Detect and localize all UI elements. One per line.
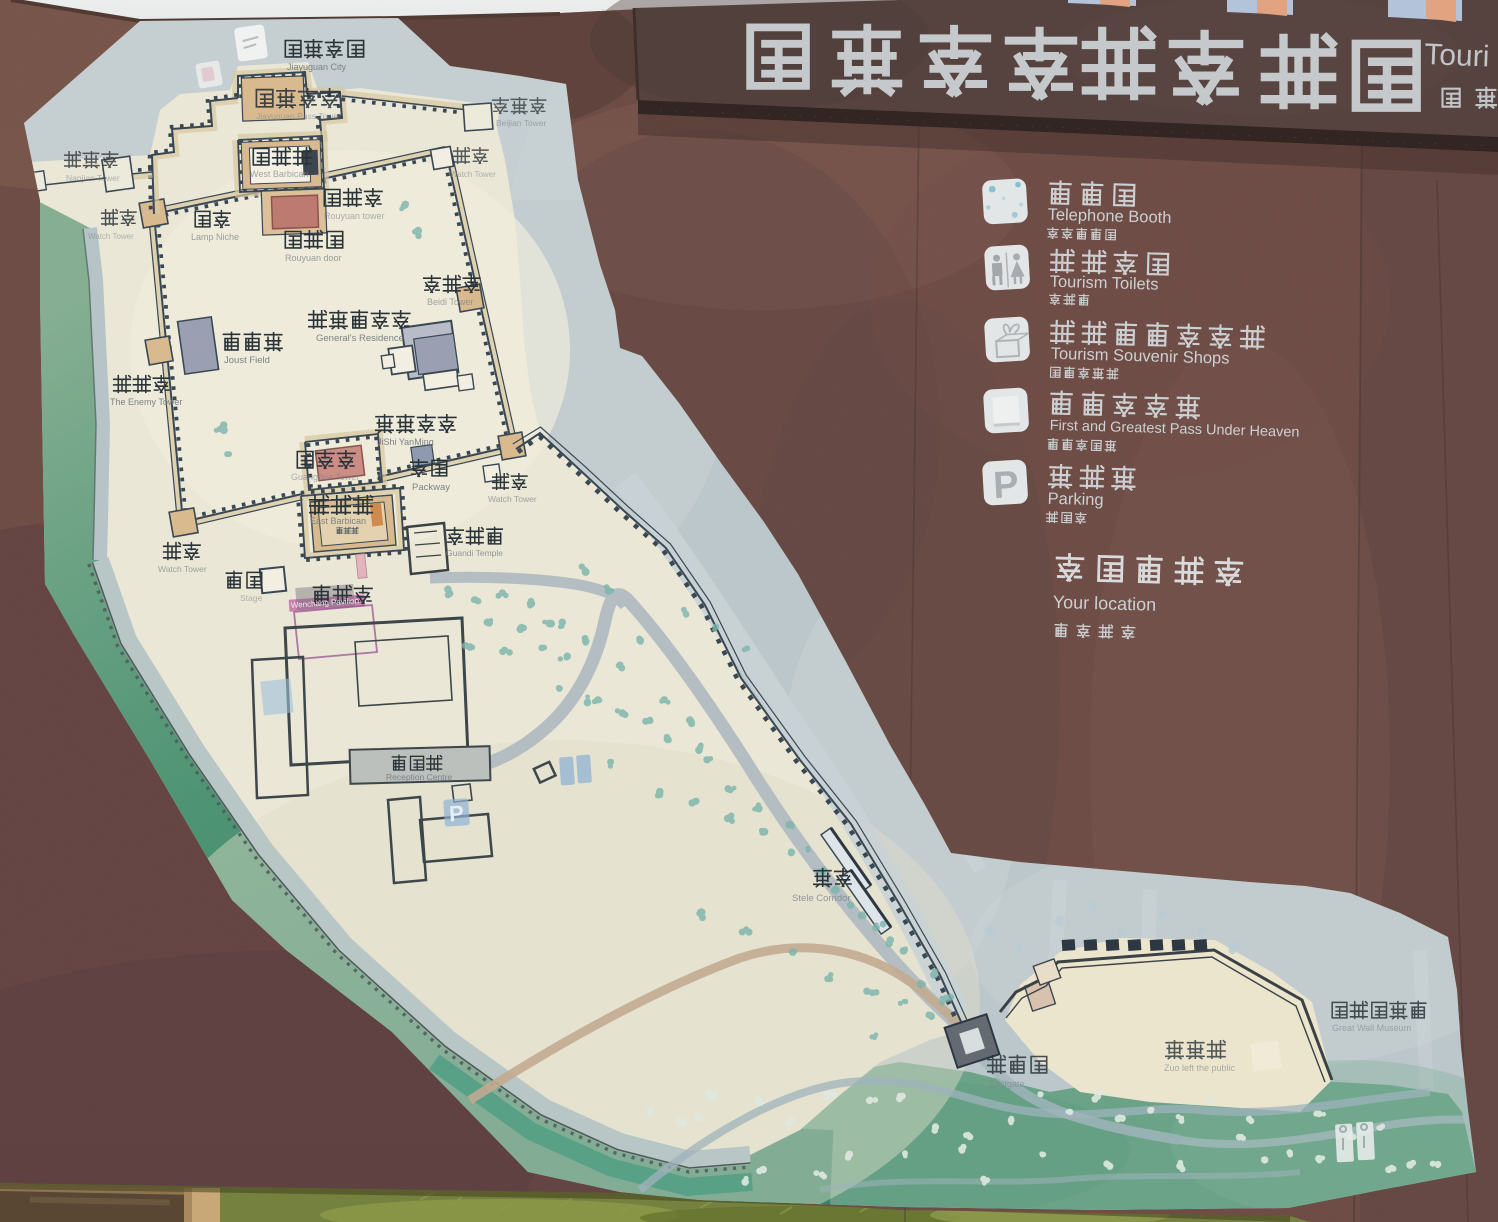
svg-text:P: P — [992, 464, 1020, 507]
svg-text:Reception Centre: Reception Centre — [386, 772, 452, 782]
svg-text:Packway: Packway — [412, 482, 450, 493]
svg-text:Watch Tower: Watch Tower — [488, 494, 537, 504]
svg-text:Beijian Tower: Beijian Tower — [496, 118, 547, 128]
svg-text:Your location: Your location — [1053, 592, 1157, 615]
svg-text:Rouyuan door: Rouyuan door — [285, 253, 342, 263]
svg-text:Stele Corridor: Stele Corridor — [792, 893, 851, 904]
svg-text:Guandi Temple: Guandi Temple — [446, 548, 503, 558]
svg-text:Jiayuguan Pass Tower: Jiayuguan Pass Tower — [256, 111, 341, 121]
svg-text:Stage: Stage — [240, 593, 262, 603]
svg-text:Jiayuguan City: Jiayuguan City — [287, 62, 347, 72]
svg-text:Beidi Tower: Beidi Tower — [427, 297, 473, 307]
svg-text:JiShi YanMing: JiShi YanMing — [377, 437, 434, 447]
svg-text:Zuo left the public: Zuo left the public — [1164, 1063, 1236, 1073]
svg-text:General's Residence: General's Residence — [316, 333, 404, 344]
svg-text:Eastgate: Eastgate — [989, 1079, 1025, 1089]
svg-text:Touri: Touri — [1424, 38, 1490, 73]
svg-text:Nanjian Tower: Nanjian Tower — [66, 173, 120, 183]
svg-text:P: P — [448, 800, 464, 826]
svg-text:Rouyuan tower: Rouyuan tower — [324, 211, 385, 221]
svg-text:Joust Field: Joust Field — [224, 355, 270, 366]
svg-text:Parking: Parking — [1047, 490, 1103, 510]
svg-text:Telephone Booth: Telephone Booth — [1047, 206, 1171, 227]
svg-text:West Barbican: West Barbican — [250, 169, 308, 179]
svg-text:Lamp Niche: Lamp Niche — [191, 232, 239, 242]
svg-text:The Enemy Tower: The Enemy Tower — [110, 397, 182, 407]
svg-text:Great Wall Museum: Great Wall Museum — [1332, 1023, 1411, 1033]
svg-text:Watch Tower: Watch Tower — [158, 564, 207, 574]
svg-text:East Barbican: East Barbican — [310, 516, 366, 526]
svg-text:Watch Tower: Watch Tower — [450, 170, 496, 179]
svg-text:Guanghua Tower: Guanghua Tower — [291, 472, 359, 482]
svg-text:Tourism Toilets: Tourism Toilets — [1049, 273, 1158, 294]
svg-text:Watch Tower: Watch Tower — [88, 232, 134, 241]
